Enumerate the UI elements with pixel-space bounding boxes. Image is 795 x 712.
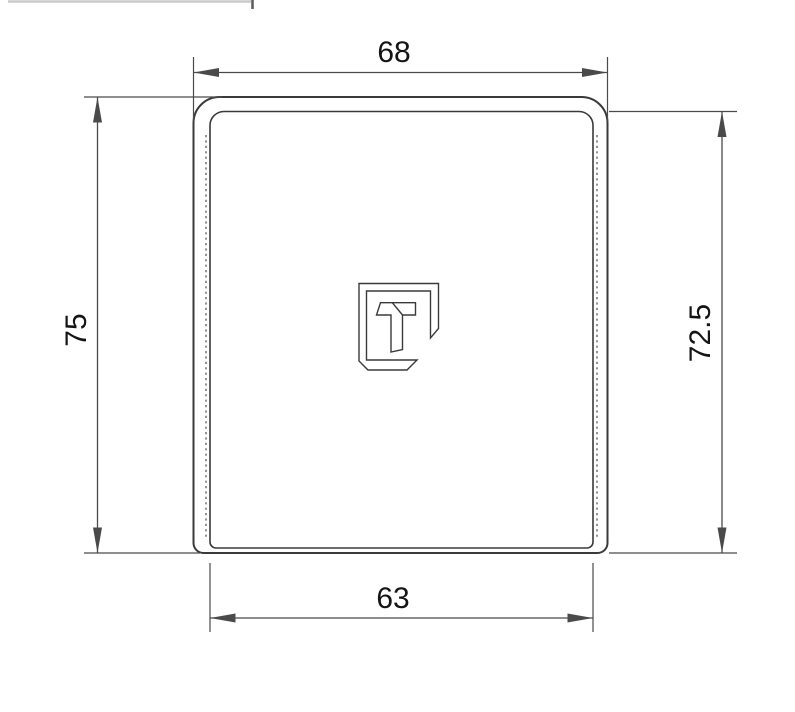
dimension-right-height: 72.5 — [609, 112, 737, 554]
dimension-top-width: 68 — [194, 36, 608, 121]
arrowhead-down-icon — [93, 528, 102, 554]
arrowhead-left-icon — [194, 68, 220, 77]
dimension-value-top-width: 68 — [377, 36, 410, 69]
arrowhead-left-icon — [210, 614, 236, 623]
t-emblem-logo — [359, 284, 439, 371]
arrowhead-up-icon — [718, 112, 727, 138]
part-inner-profile — [210, 112, 593, 549]
drawing-canvas: 68 75 72.5 63 — [0, 0, 795, 712]
arrowhead-right-icon — [582, 68, 608, 77]
logo-letter-t-icon — [377, 303, 416, 352]
logo-seam-line — [392, 303, 402, 315]
technical-drawing: 68 75 72.5 63 — [0, 0, 795, 712]
arrowhead-right-icon — [568, 614, 594, 623]
dimension-bottom-width: 63 — [210, 563, 593, 632]
part-view — [194, 97, 608, 553]
dimension-value-right-height: 72.5 — [684, 304, 717, 362]
clipped-edge-artifact — [8, 0, 253, 9]
logo-frame-ribbon-icon — [359, 284, 439, 371]
dimension-value-bottom-width: 63 — [376, 582, 409, 615]
arrowhead-down-icon — [718, 528, 727, 554]
dimension-left-height: 75 — [60, 97, 222, 553]
part-outer-profile — [194, 97, 608, 553]
dimension-value-left-height: 75 — [60, 313, 93, 346]
arrowhead-up-icon — [93, 97, 102, 123]
